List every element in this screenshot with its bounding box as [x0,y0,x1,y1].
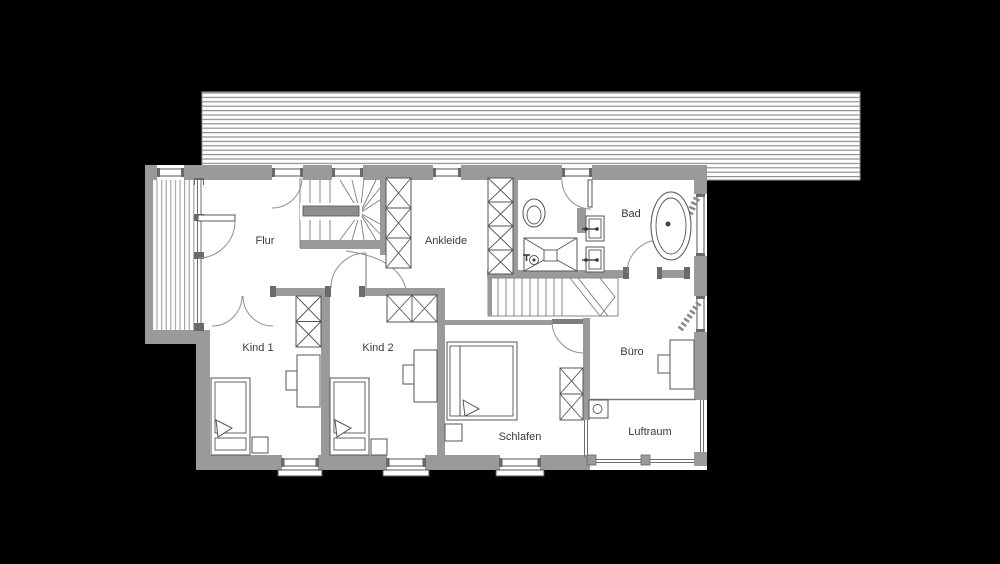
wardrobe [560,368,583,420]
wardrobe [488,178,513,274]
window [278,455,322,476]
side-table [371,439,387,455]
room-label-kind2: Kind 2 [362,342,393,354]
bed [330,378,369,455]
wardrobe [296,296,321,347]
side-table [252,437,268,453]
room-label-flur: Flur [256,235,275,247]
toilet-icon [523,199,545,227]
staircase-flight [488,278,618,316]
wardrobe [386,178,411,268]
balcony-decking [152,180,196,330]
terrace-door [272,165,303,180]
room-label-ankleide: Ankleide [425,235,467,247]
shower-icon [523,238,577,271]
terrace-door [562,165,592,180]
double-bed [447,342,517,420]
side-table [445,424,462,441]
wardrobe [387,295,437,322]
window [383,455,429,476]
window [496,455,544,476]
bed [211,378,250,455]
window [157,165,184,180]
bottom-windows [278,455,544,476]
vent-icon [589,400,608,418]
room-label-kind1: Kind 1 [242,342,273,354]
handrail [303,206,359,216]
window [332,165,363,180]
room-label-luftraum: Luftraum [628,426,671,438]
window [433,165,461,180]
window [694,296,707,332]
room-label-bad: Bad [621,208,641,220]
floor-plan-canvas: Flur Ankleide Bad Kind 1 Kind 2 Büro Sch… [0,0,1000,564]
bathtub-icon [651,192,691,260]
room-label-schlafen: Schlafen [499,431,542,443]
room-label-buero: Büro [620,346,643,358]
floor-plan-drawing: Flur Ankleide Bad Kind 1 Kind 2 Büro Sch… [0,0,1000,564]
